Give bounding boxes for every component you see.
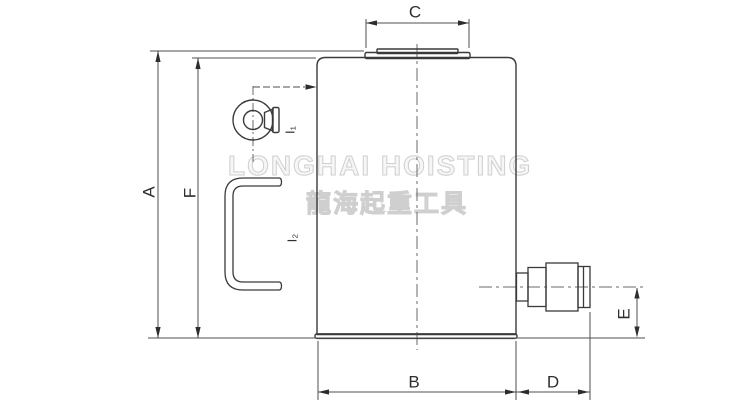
dim-label-E: E [616,308,633,319]
arrow-B-left [318,389,329,394]
lifting-eye-bolt [233,100,279,140]
dim-label-D: D [547,374,559,391]
cylinder-dimension-drawing [0,0,750,414]
arrow-A-down [155,327,160,338]
dim-label-B: B [408,374,419,391]
arrow-F-up [195,58,200,69]
arrow-E-up [634,288,639,299]
technical-drawing-canvas: LONGHAI HOISTING 龍海起重工具 [0,0,750,414]
arrow-D-right [578,389,589,394]
dimension-lines-group [148,19,645,400]
arrow-D-left [518,389,529,394]
carry-handle [225,178,282,290]
arrow-E-down [634,327,639,338]
arrow-C-left [366,20,377,25]
arrow-A-up [155,51,160,62]
dim-label-I1: I₁ [284,126,297,134]
dim-label-F: F [182,188,199,198]
dim-label-I2: I₂ [286,234,299,243]
dim-label-A: A [141,186,158,197]
arrow-C-right [458,20,469,25]
cylinder-outline-group [225,49,590,338]
dim-label-C: C [409,4,421,21]
arrow-eyebolt-leader [306,84,317,89]
arrow-B-right [505,389,516,394]
center-lines [253,44,645,350]
arrow-F-down [195,327,200,338]
